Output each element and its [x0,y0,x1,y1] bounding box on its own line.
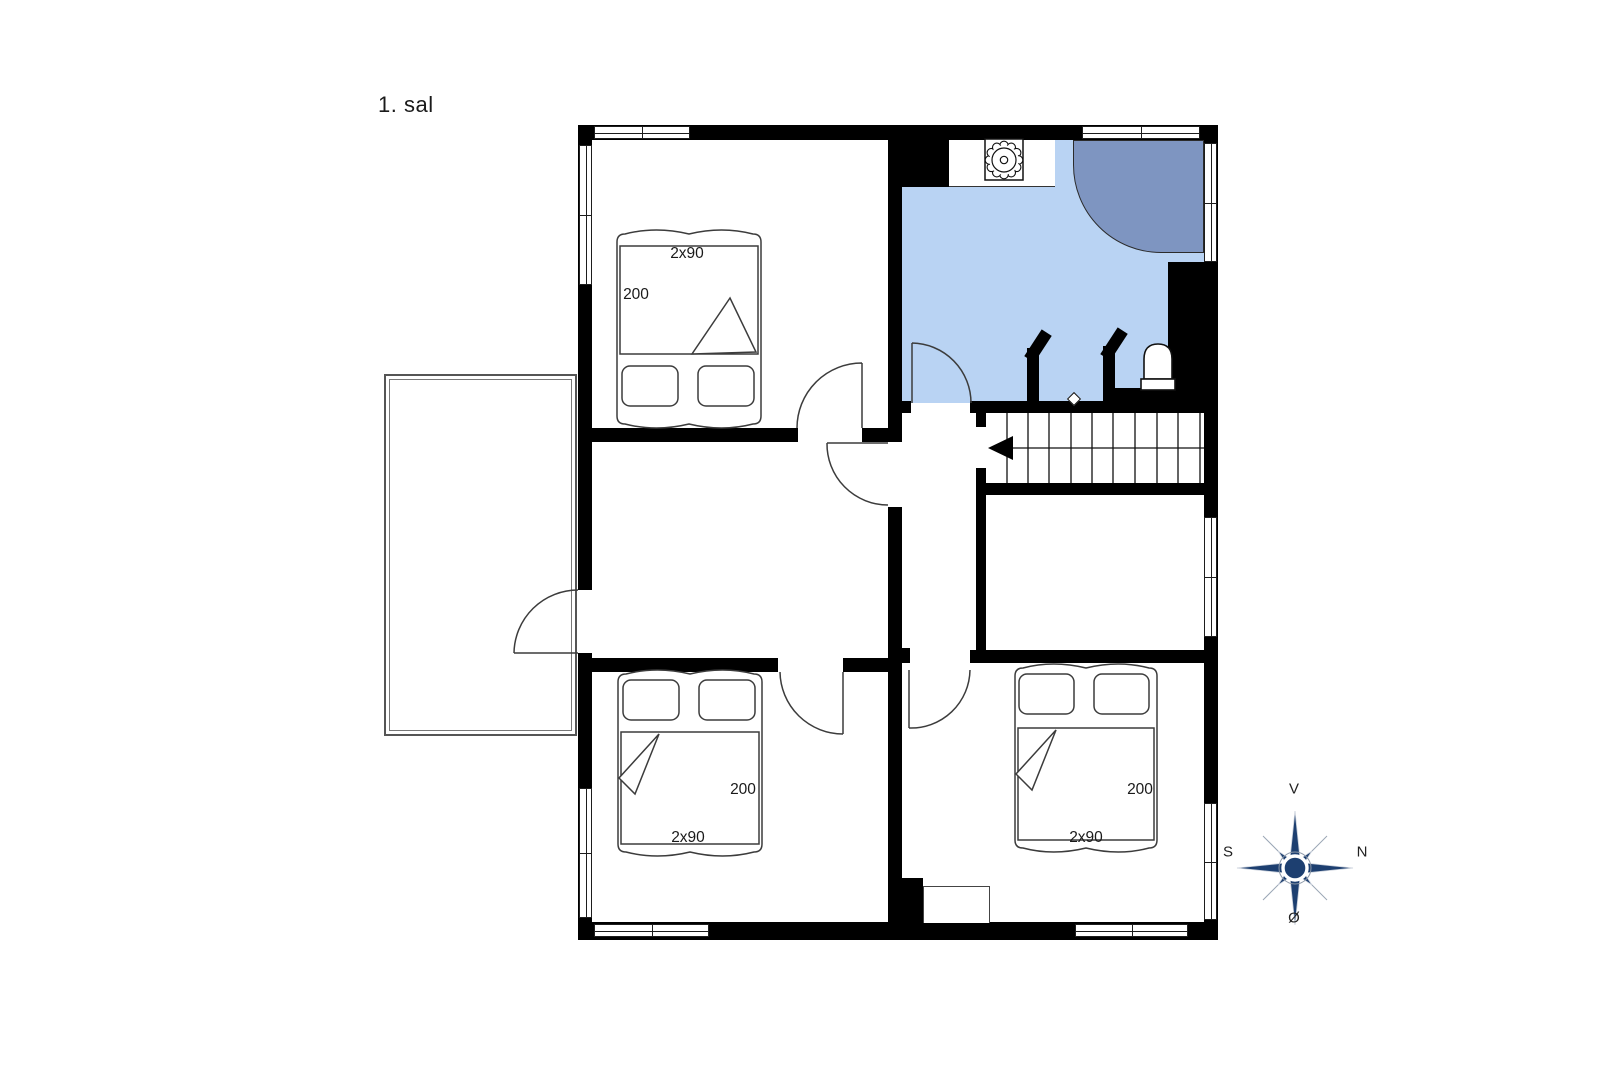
pillow [699,680,755,720]
compass-label-north: N [1357,844,1368,861]
compass-label-west: V [1289,781,1299,798]
bed-length-label: 200 [1127,781,1153,799]
door-arc [827,443,888,505]
pillow [1094,674,1149,714]
pillow [623,680,679,720]
door-arc [912,343,971,403]
door-arc [909,670,970,728]
door-arc [514,590,578,653]
compass-label-south: S [1223,844,1233,861]
double-bed [1008,660,1164,856]
pillow [698,366,754,406]
pillow [1019,674,1074,714]
floor-title: 1. sal [378,92,434,118]
compass-label-east: Ø [1288,910,1300,927]
door-arc [797,363,862,428]
pillow [622,366,678,406]
bed-length-label: 200 [730,781,756,799]
bed-length-label: 200 [623,286,649,304]
floor-plan-canvas: 1. sal [0,0,1600,1066]
bed-width-label: 2x90 [1069,829,1103,847]
bed-width-label: 2x90 [670,245,704,263]
bed-width-label: 2x90 [671,829,705,847]
door-arc [780,672,843,734]
